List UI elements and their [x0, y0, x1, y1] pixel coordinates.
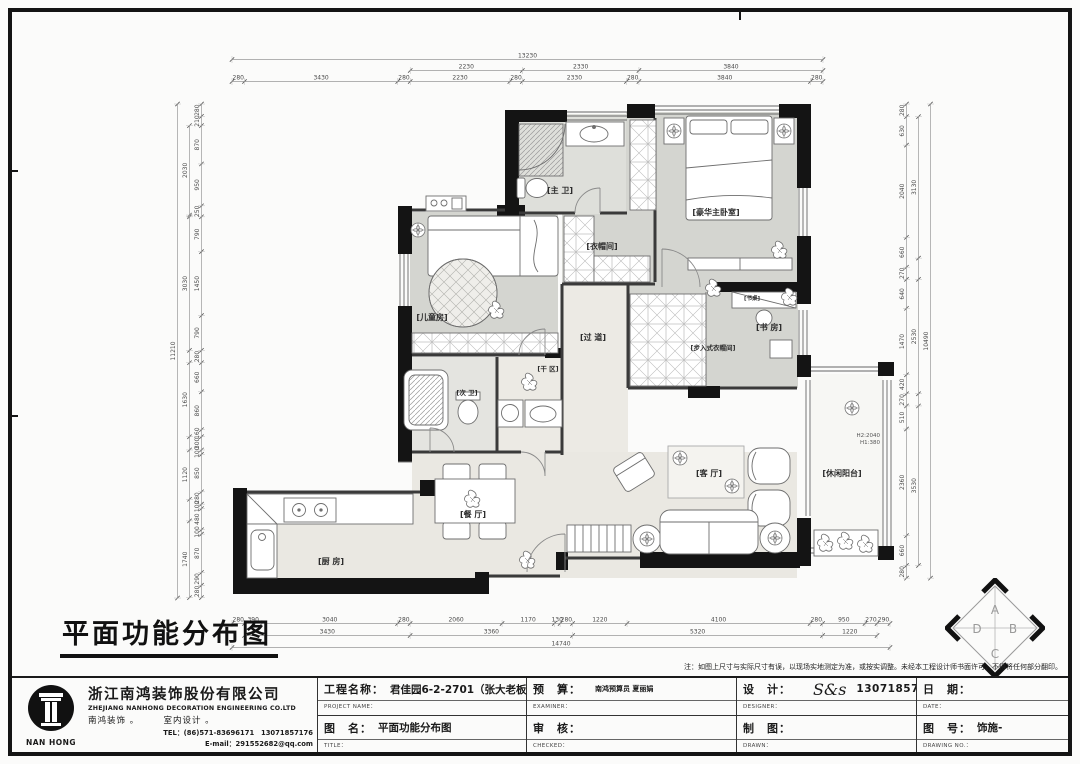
dim-label: 1630 — [182, 392, 189, 407]
dim-label: 1220 — [592, 617, 607, 624]
titleblock-col-design: 设 计： S&s 13071857176 DESIGNER： 制 图： DRAW… — [737, 678, 917, 752]
dim-label: 3030 — [182, 276, 189, 291]
dim-label: 660 — [194, 371, 201, 383]
titleblock-col-budget: 预 算： 南鸿预算员 夏丽娟 EXAMINER： 审 核： CHECKED： — [527, 678, 737, 752]
dim-label: 280 — [899, 104, 906, 116]
dim-label: 100 — [194, 526, 201, 538]
dim-label: 510 — [899, 412, 906, 424]
company-subtitle: 南鸿装饰 。 室内设计 。 — [88, 714, 313, 726]
dim-label: 3360 — [484, 629, 499, 636]
designer-phone: 13071857176 — [856, 683, 916, 695]
budget-value: 南鸿预算员 夏丽娟 — [595, 684, 653, 694]
company-logo: NAN HONG — [20, 683, 82, 747]
dim-label: 2230 — [452, 75, 467, 82]
compass-letter-b: B — [1009, 622, 1017, 636]
dim-label: 280 — [627, 75, 639, 82]
dim-label: 280 — [398, 75, 410, 82]
company-logo-text: NAN HONG — [20, 738, 82, 747]
dim-label: 100 — [194, 500, 201, 512]
date-label: 日 期： — [923, 681, 971, 697]
dim-label: 250 — [194, 205, 201, 217]
dim-label: 210 — [194, 115, 201, 127]
height-note-h1: H1:380 — [860, 440, 880, 446]
dim-label: 860 — [194, 405, 201, 417]
dim-label: 10490 — [923, 331, 930, 350]
company-block: NAN HONG 浙江南鸿装饰股份有限公司 ZHEJIANG NANHONG D… — [12, 678, 318, 752]
height-note-h2: H2:2040 — [857, 433, 881, 439]
dim-label: 2230 — [459, 64, 474, 71]
dim-label: 13230 — [518, 53, 537, 60]
room-label-second-bath: [次 卫] — [456, 388, 477, 397]
dim-label: 3530 — [911, 478, 918, 493]
dim-label: 1120 — [182, 467, 189, 482]
check-caption: CHECKED： — [527, 740, 736, 754]
dim-label: 1220 — [842, 629, 857, 636]
dim-label: 2060 — [448, 617, 463, 624]
dim-label: 660 — [899, 545, 906, 557]
room-label-desk: [书桌] — [744, 294, 761, 302]
dim-label: 280 — [194, 104, 201, 116]
dim-label: 2360 — [899, 475, 906, 490]
room-label-walkin-closet: [步入式衣帽间] — [691, 343, 736, 352]
dim-label: 160 — [194, 427, 201, 439]
drawing-no-label: 图 号： — [923, 720, 971, 736]
dim-label: 3430 — [313, 75, 328, 82]
dim-label: 790 — [194, 228, 201, 240]
dim-label: 2030 — [182, 163, 189, 178]
dim-label: 950 — [838, 617, 850, 624]
dim-label: 790 — [194, 327, 201, 339]
room-label-study: [书 房] — [756, 322, 782, 332]
date-caption: DATE： — [917, 701, 1068, 715]
dim-label: 2530 — [911, 329, 918, 344]
dim-label: 280 — [510, 75, 522, 82]
dim-label: 270 — [865, 617, 877, 624]
dim-label: 3130 — [911, 180, 918, 195]
dim-label: 3840 — [723, 64, 738, 71]
drawing-no-value: 饰施- — [977, 720, 1002, 735]
dim-label: 660 — [899, 246, 906, 258]
check-label: 审 核： — [533, 720, 581, 736]
project-name-caption: PROJECT NAME： — [318, 701, 526, 715]
dim-label: 3040 — [322, 617, 337, 624]
dim-label: 630 — [899, 125, 906, 137]
compass-letter-c: C — [991, 647, 999, 661]
dim-label: 280 — [811, 617, 823, 624]
dim-label: 5320 — [690, 629, 705, 636]
dim-label: 1450 — [194, 276, 201, 291]
titleblock-col-project: 工程名称： 君佳园6-2-2701（张大老板娘） PROJECT NAME： 图… — [318, 678, 527, 752]
dim-label: 280 — [233, 75, 245, 82]
designer-caption: DESIGNER： — [737, 701, 916, 715]
drawn-label: 制 图： — [743, 720, 791, 736]
dim-label: 100 — [194, 446, 201, 458]
project-name-value: 君佳园6-2-2701（张大老板娘） — [390, 682, 526, 697]
company-name-cn: 浙江南鸿装饰股份有限公司 — [88, 683, 313, 704]
dim-label: 290 — [194, 573, 201, 585]
project-name-label: 工程名称： — [324, 681, 384, 697]
designer-signature: S&s — [813, 680, 846, 699]
room-label-kids-room: [儿童房] — [416, 312, 447, 322]
room-label-dry-area: [干 区] — [537, 365, 558, 373]
dim-label: 3430 — [320, 629, 335, 636]
dim-label: 3840 — [717, 75, 732, 82]
dim-label: 270 — [899, 394, 906, 406]
title-block: NAN HONG 浙江南鸿装饰股份有限公司 ZHEJIANG NANHONG D… — [12, 676, 1068, 752]
dim-label: 280 — [194, 351, 201, 363]
dim-label: 290 — [878, 617, 890, 624]
dim-label: 420 — [899, 378, 906, 390]
compass-letter-a: A — [991, 603, 1000, 617]
dim-label: 1740 — [182, 551, 189, 566]
dim-label: 870 — [194, 139, 201, 151]
dim-label: 1470 — [899, 334, 906, 349]
titleblock-col-date: 日 期： DATE： 图 号： 饰施- DRAWING NO.： — [917, 678, 1068, 752]
room-label-kitchen: [厨 房] — [318, 556, 344, 566]
dim-label: 280 — [194, 586, 201, 598]
nanhong-logo-icon — [26, 683, 76, 733]
dim-label: 4100 — [711, 617, 726, 624]
company-tel: TEL：(86)571-83696171 13071857176 — [88, 727, 313, 737]
dim-label: 280 — [561, 617, 573, 624]
dim-label: 640 — [899, 288, 906, 300]
budget-label: 预 算： — [533, 681, 581, 697]
company-name-en: ZHEJIANG NANHONG DECORATION ENGINEERING … — [88, 705, 313, 712]
dim-label: 11210 — [170, 341, 177, 360]
drawing-title-value: 平面功能分布图 — [378, 720, 452, 735]
dim-label: 950 — [194, 179, 201, 191]
dim-label: 14740 — [551, 641, 570, 648]
drawing-title-caption: TITLE： — [318, 740, 526, 754]
dim-label: 480 — [194, 513, 201, 525]
dim-label: 1170 — [521, 617, 536, 624]
room-label-master-bedroom: [豪华主卧室] — [692, 207, 739, 217]
drawn-caption: DRAWN： — [737, 740, 916, 754]
dim-label: 2330 — [567, 75, 582, 82]
budget-caption: EXAMINER： — [527, 701, 736, 715]
compass-letter-d: D — [972, 622, 981, 636]
disclaimer-note: 注：如图上尺寸与实际尺寸有误，以现场实地测定为准，或按实调整。未经本工程设计师书… — [684, 662, 1062, 672]
dim-label: 870 — [194, 547, 201, 559]
designer-label: 设 计： — [743, 681, 791, 697]
dim-label: 270 — [899, 267, 906, 279]
dim-label: 850 — [194, 467, 201, 479]
drawing-sheet: [主 卫] [衣帽间] [豪华主卧室] [儿童房] [过 道] [书 房] [步… — [0, 0, 1080, 764]
dim-label: 280 — [811, 75, 823, 82]
sheet-title: 平面功能分布图 — [60, 612, 278, 658]
room-label-hallway: [过 道] — [580, 332, 606, 342]
room-label-living: [客 厅] — [696, 468, 722, 478]
drawing-no-caption: DRAWING NO.： — [917, 740, 1068, 754]
dim-label: 2330 — [573, 64, 588, 71]
room-label-dining: [餐 厅] — [460, 509, 486, 519]
room-label-balcony: [休闲阳台] — [822, 468, 861, 478]
room-label-master-bath: [主 卫] — [547, 185, 573, 195]
dim-label: 2040 — [899, 183, 906, 198]
dim-label: 280 — [899, 566, 906, 578]
company-email: E-mail：291552682@qq.com — [88, 738, 313, 748]
drawing-title-label: 图 名： — [324, 720, 372, 736]
room-label-cloakroom: [衣帽间] — [586, 241, 617, 251]
dim-label: 280 — [398, 617, 410, 624]
